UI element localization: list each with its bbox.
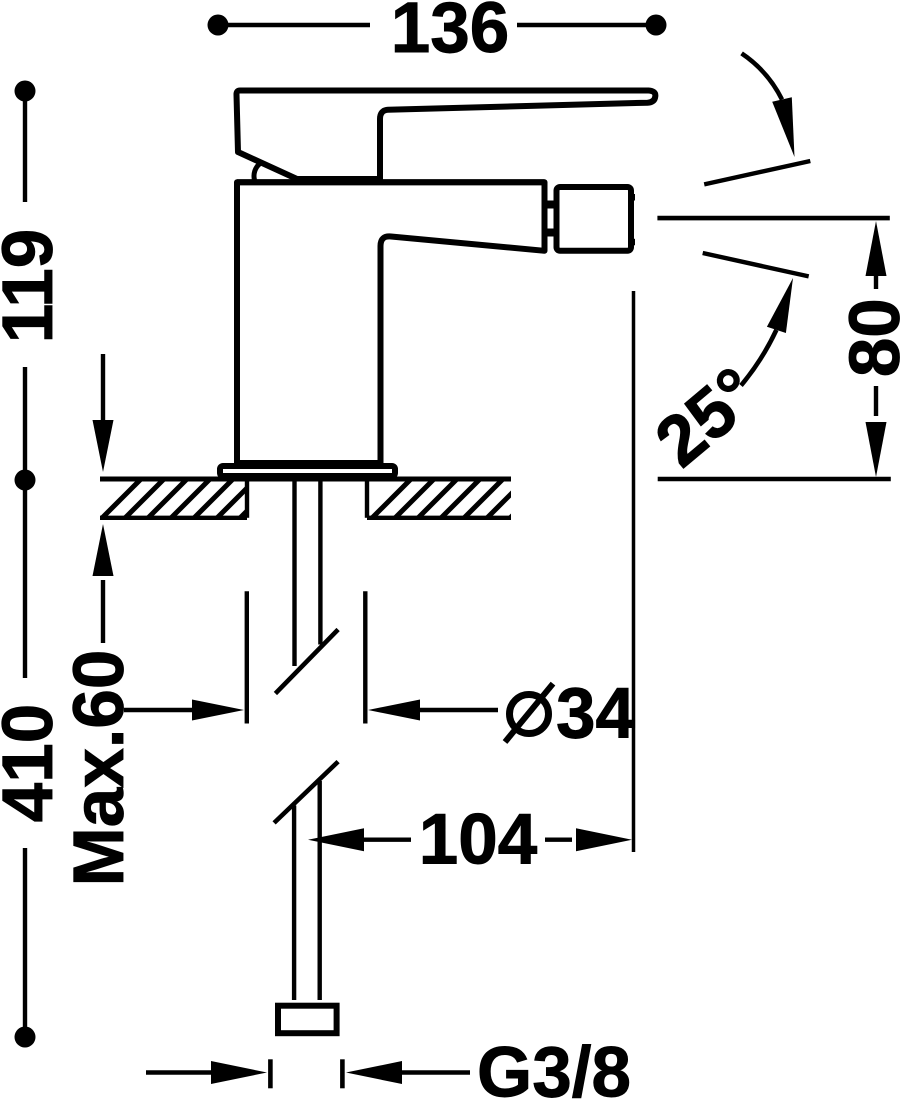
svg-text:410: 410 [0, 704, 68, 822]
svg-text:104: 104 [419, 801, 538, 880]
svg-text:Max.60: Max.60 [60, 650, 139, 887]
svg-text:G3/8: G3/8 [477, 1033, 631, 1100]
svg-text:80: 80 [836, 298, 901, 377]
svg-text:34: 34 [556, 674, 635, 753]
svg-text:119: 119 [0, 229, 68, 344]
svg-text:136: 136 [391, 0, 509, 68]
